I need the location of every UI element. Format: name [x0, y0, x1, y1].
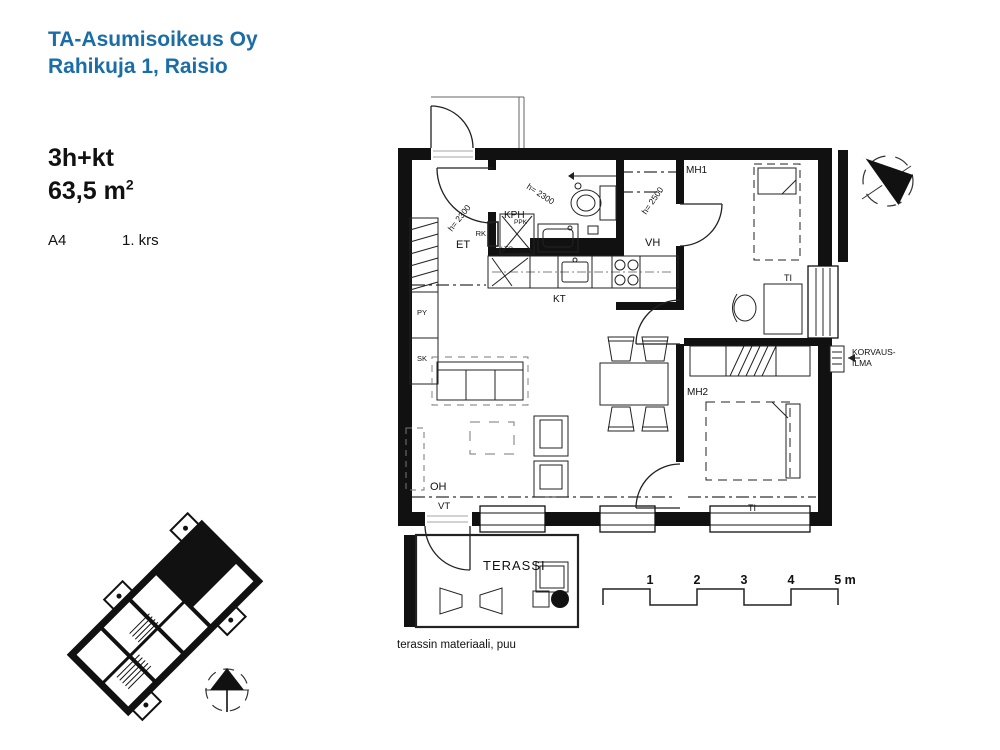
room-label-mh2: MH2 [687, 387, 709, 398]
room-label-kt: KT [553, 294, 566, 305]
scale-tick-3: 3 [741, 573, 748, 587]
fixture-label-py: PY [417, 308, 427, 317]
entry-porch-lines [431, 97, 524, 148]
scale-tick-2: 2 [694, 573, 701, 587]
fixture-label-ppk: PPK [514, 219, 528, 226]
height-vh: h= 2500 [639, 185, 665, 216]
terrace-note: terassin materiaali, puu [397, 639, 516, 651]
ceiling-change-lines [412, 172, 816, 497]
fixture-label-lto: LTO [501, 246, 513, 253]
scale-tick-4: 4 [788, 573, 795, 587]
fixture-label-sk: SK [417, 354, 427, 363]
height-kph: h= 2300 [525, 181, 557, 206]
room-label-mh1: MH1 [686, 165, 708, 176]
room-label-ti-mh1: TI [784, 273, 792, 283]
north-arrow-icon [205, 668, 249, 712]
compass-icon [862, 156, 913, 206]
mh2-furniture [706, 402, 800, 480]
mh1-furniture [733, 164, 803, 334]
wardrobe-row [690, 346, 810, 376]
room-label-ti-mh2: TI [748, 503, 756, 513]
fixture-label-rk: RK [476, 229, 486, 238]
scale-bar: 1 2 3 4 5 m [603, 573, 856, 605]
room-label-oh: OH [430, 481, 447, 493]
scale-tick-1: 1 [647, 573, 654, 587]
floorplan-drawing: 1 2 3 4 5 m [0, 0, 1000, 750]
room-label-vt: VT [438, 501, 450, 512]
vent-label-line2: ILMA [852, 358, 872, 368]
terrace [404, 535, 578, 627]
living-room-furniture [406, 357, 568, 497]
room-label-et: ET [456, 239, 470, 251]
floorplan-page: TA-Asumisoikeus Oy Rahikuja 1, Raisio 3h… [0, 0, 1000, 750]
ceiling-height-annotations: h= 2300 h= 2300 h= 2500 [446, 181, 666, 233]
scale-tick-5m: 5 m [834, 573, 856, 587]
room-label-terassi: TERASSI [483, 558, 546, 573]
dining-set [600, 337, 668, 431]
key-plan [59, 512, 270, 723]
room-label-vh: VH [645, 237, 660, 249]
vent-label-line1: KORVAUS- [852, 347, 896, 357]
